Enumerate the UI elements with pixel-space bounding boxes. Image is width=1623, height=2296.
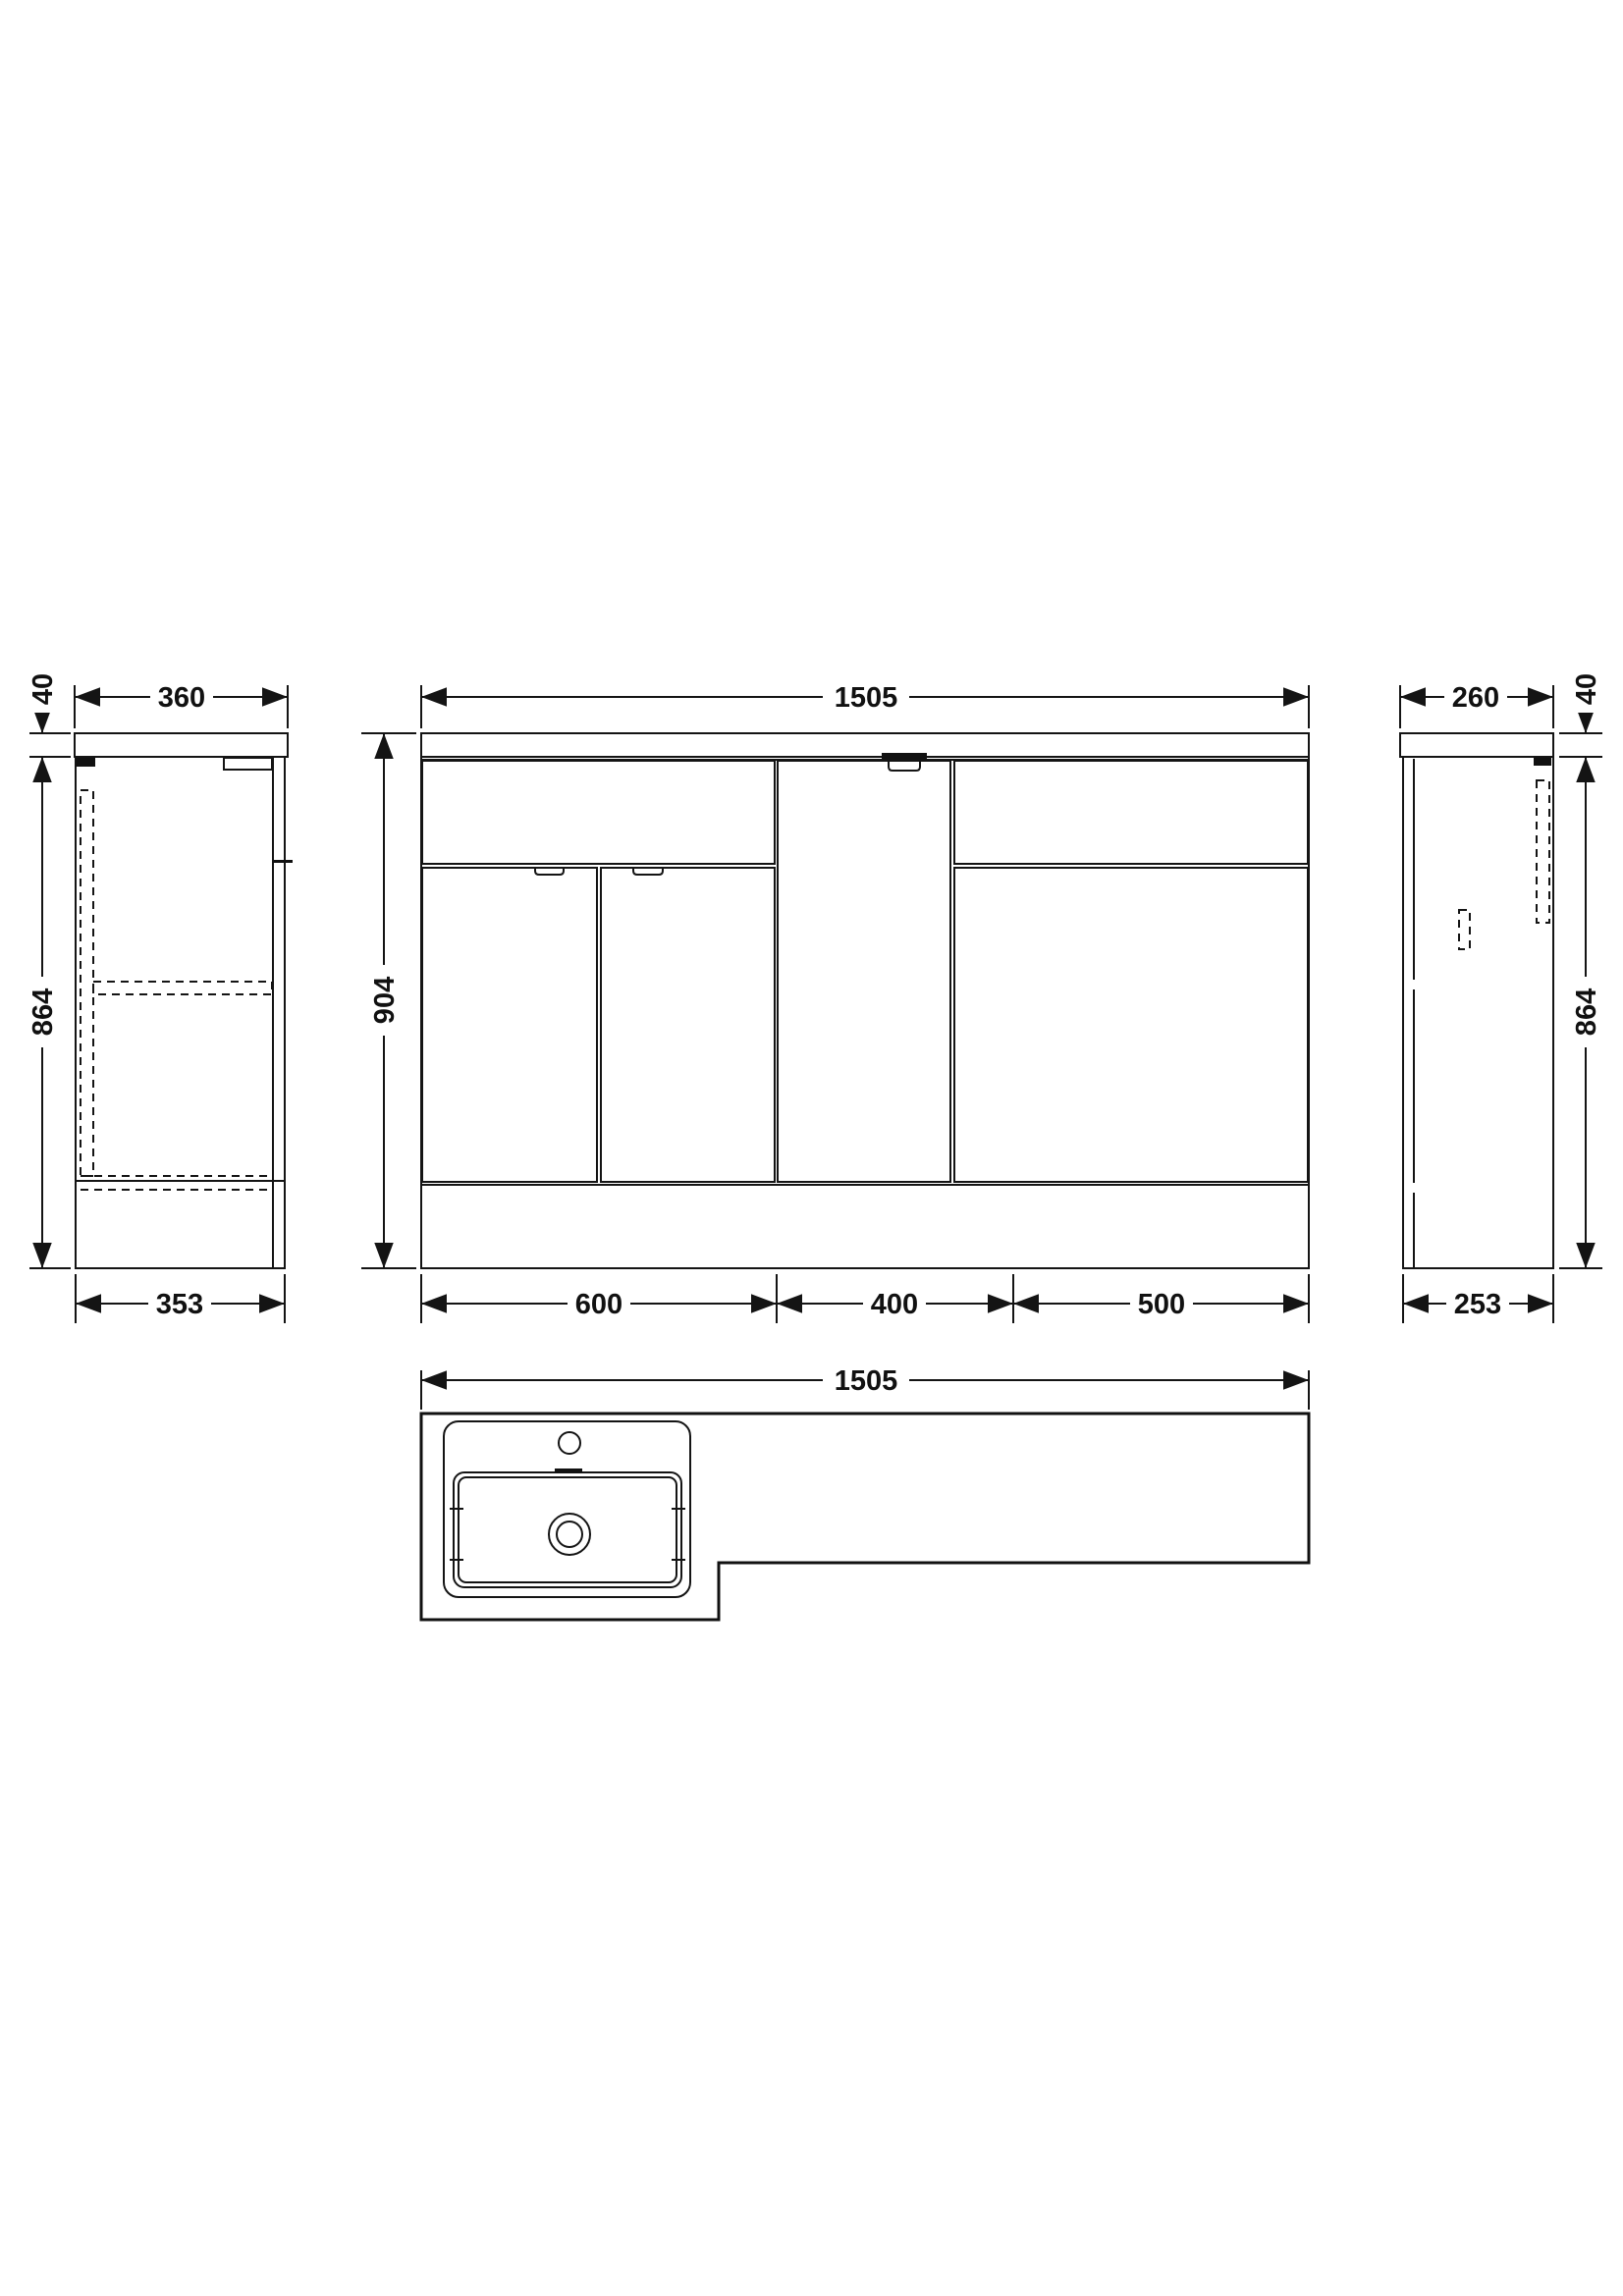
dim-left-body-height: 864 [27, 988, 59, 1036]
dim-right-worktop-thickness: 40 [1571, 673, 1602, 705]
front-view-carcass [421, 757, 1309, 1268]
left-view-hinge-mark [76, 758, 95, 767]
dim-front-segment-600: 600 [575, 1289, 622, 1320]
plan-drain-outer [549, 1514, 590, 1555]
front-view: 1505 904 600 400 500 [361, 682, 1309, 1323]
left-view-body [76, 757, 285, 1268]
dim-front-segment-500: 500 [1138, 1289, 1185, 1320]
dim-left-worktop-thickness: 40 [27, 673, 59, 705]
dim-right-body-height: 864 [1571, 988, 1602, 1036]
dim-left-top-width: 360 [158, 682, 205, 714]
left-view-hidden-door-edge [81, 790, 93, 1176]
right-view-hinge-mark [1534, 758, 1551, 766]
plan-overflow-slot [555, 1468, 582, 1473]
plan-worktop-outline [421, 1414, 1309, 1620]
dim-left-bottom-width: 353 [156, 1289, 203, 1320]
dim-right-top-width: 260 [1452, 682, 1499, 714]
dim-plan-total-width: 1505 [835, 1365, 898, 1397]
dim-front-segment-400: 400 [871, 1289, 918, 1320]
front-view-left-top-panel [422, 761, 775, 864]
front-view-right-top-panel [954, 761, 1308, 864]
plan-basin-outer-rim [444, 1421, 690, 1597]
left-view-rear-rail [224, 758, 272, 770]
right-side-view: 260 40 864 253 [1400, 666, 1602, 1323]
front-view-left-door-2 [601, 868, 775, 1182]
front-view-worktop [421, 733, 1309, 757]
plan-view: 1505 [421, 1365, 1309, 1620]
left-view-bracket-tick [273, 860, 293, 863]
technical-drawing-svg: 360 40 864 353 [0, 0, 1623, 2296]
right-view-body [1403, 757, 1553, 1268]
plan-tap-hole [559, 1432, 580, 1454]
plan-drain-inner [557, 1522, 582, 1547]
front-view-handle-notch-door1 [535, 868, 564, 875]
front-view-handle-notch-door2 [633, 868, 663, 875]
right-view-worktop [1400, 733, 1553, 757]
front-view-hinge-mark [882, 753, 927, 760]
front-view-left-door-1 [422, 868, 597, 1182]
drawing-canvas: 360 40 864 353 [0, 0, 1623, 2296]
left-view-worktop [75, 733, 288, 757]
dim-right-bottom-width: 253 [1454, 1289, 1501, 1320]
dim-front-total-height: 904 [369, 977, 401, 1024]
left-view-hidden-shelf [93, 982, 272, 994]
front-view-right-door [954, 868, 1308, 1182]
right-view-hidden-fixing [1459, 910, 1470, 949]
dim-front-total-width: 1505 [835, 682, 898, 714]
right-view-hidden-pipe [1537, 780, 1549, 923]
front-view-handle-notch-mid-door [889, 761, 920, 771]
plan-basin-bowl [454, 1472, 681, 1587]
left-side-view: 360 40 864 353 [27, 666, 293, 1323]
front-view-mid-door [778, 761, 950, 1182]
